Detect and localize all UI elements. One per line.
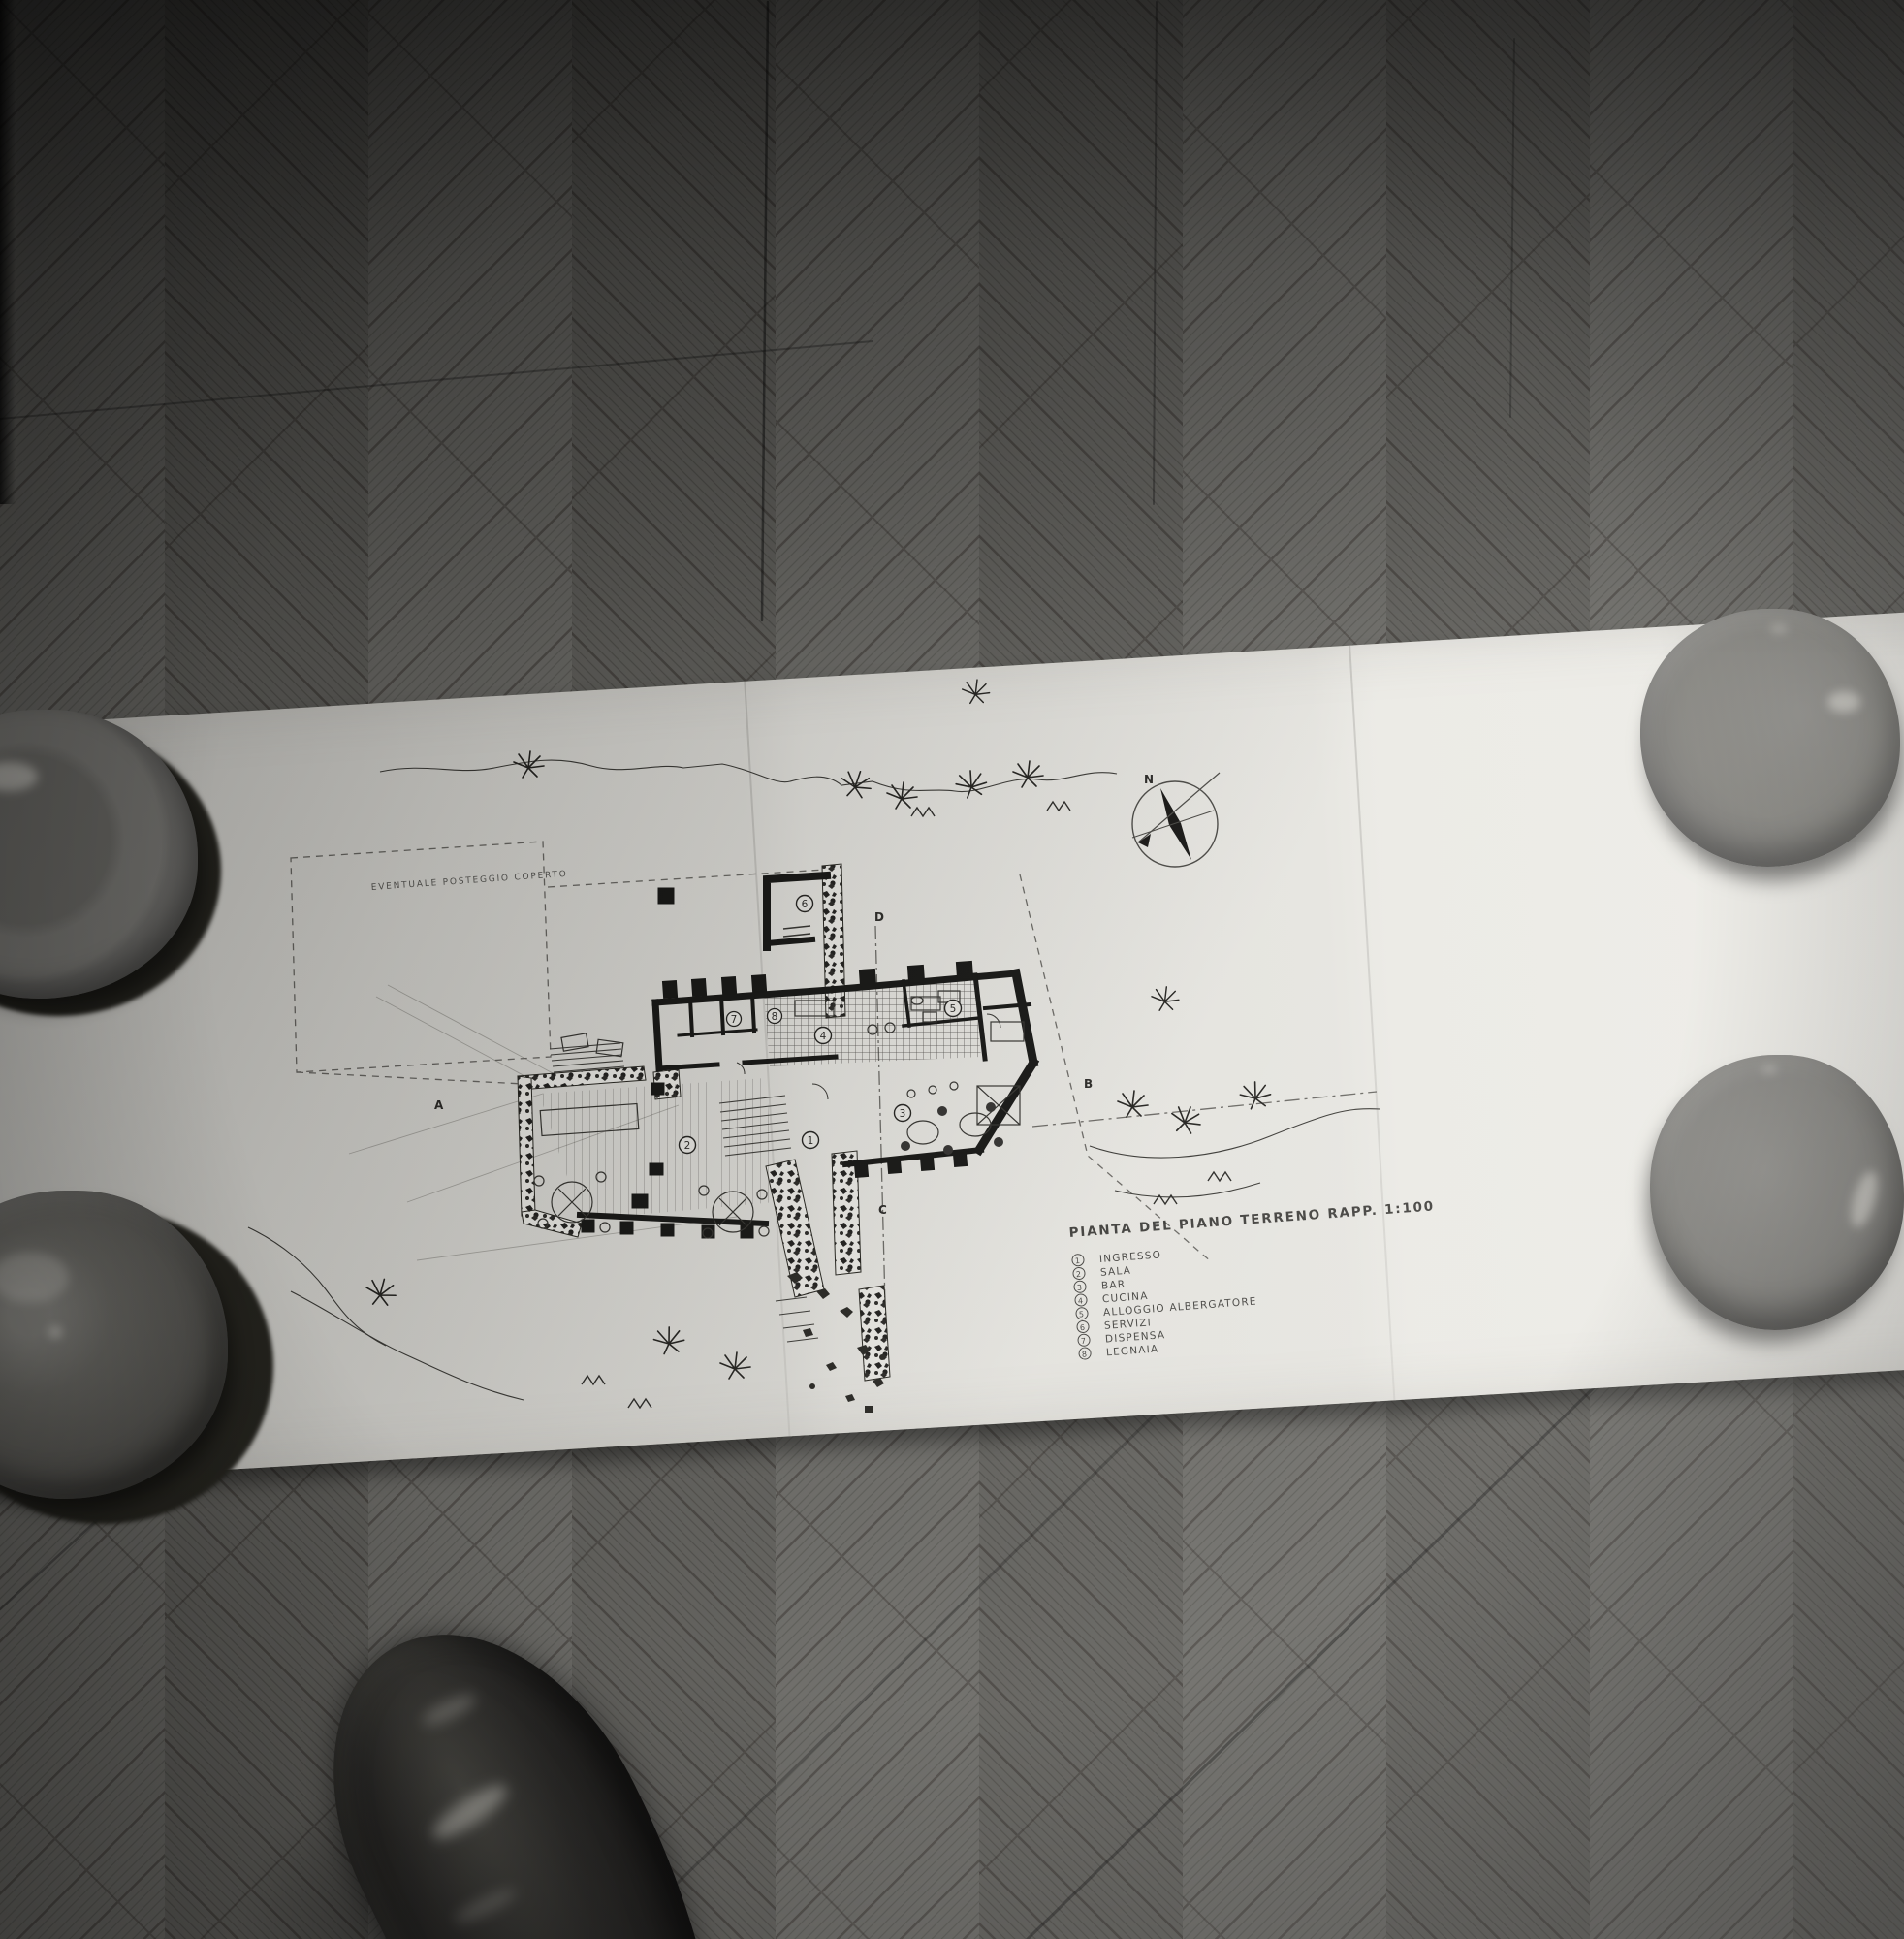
bowl-highlight: [1770, 624, 1788, 633]
bowl-highlight: [0, 762, 38, 791]
svg-text:6: 6: [1080, 1323, 1087, 1332]
room-number-2: 2: [684, 1140, 691, 1152]
section-marker-c: C: [878, 1203, 887, 1217]
shoe-highlight: [420, 1690, 480, 1731]
floor-plan-drawing: N: [0, 0, 1904, 1939]
room-number-7: 7: [731, 1014, 738, 1026]
bowl-highlight: [1846, 1168, 1883, 1230]
terrain-trees-top: [380, 680, 1117, 816]
bowl-highlight: [1761, 1065, 1777, 1073]
shoe-highlight: [452, 1884, 520, 1927]
shoe-highlight: [427, 1777, 513, 1847]
svg-text:5: 5: [1079, 1310, 1086, 1319]
room-number-3: 3: [900, 1108, 906, 1120]
svg-text:SERVIZI: SERVIZI: [1104, 1317, 1153, 1332]
svg-text:BAR: BAR: [1101, 1279, 1127, 1292]
section-marker-d: D: [874, 910, 884, 924]
svg-text:SALA: SALA: [1100, 1265, 1132, 1279]
svg-text:LEGNAIA: LEGNAIA: [1106, 1343, 1159, 1358]
svg-text:INGRESSO: INGRESSO: [1099, 1249, 1162, 1265]
svg-text:4: 4: [1078, 1296, 1085, 1305]
room-number-1: 1: [808, 1135, 814, 1147]
svg-text:CUCINA: CUCINA: [1102, 1290, 1149, 1305]
site-note-text: EVENTUALE POSTEGGIO COPERTO: [371, 870, 568, 893]
plan-legend: 1 INGRESSO 2 SALA 3 BAR 4 CUCINA 5 ALLOG…: [1072, 1241, 1261, 1360]
svg-text:7: 7: [1081, 1337, 1088, 1346]
compass-rose: N: [1132, 773, 1220, 867]
floor-hatches: [539, 975, 981, 1220]
bowl-highlight: [0, 1253, 69, 1303]
svg-text:1: 1: [1075, 1256, 1082, 1265]
bowl-paperweight-right-middle: [1650, 1055, 1904, 1330]
legend-item: 3 BAR: [1074, 1278, 1127, 1294]
section-marker-a: A: [434, 1098, 444, 1112]
terrain-trees-bottom-left: [248, 1227, 750, 1408]
room-number-8: 8: [772, 1011, 778, 1023]
svg-text:2: 2: [1076, 1270, 1083, 1279]
compass-n-label: N: [1144, 773, 1154, 786]
room-number-4: 4: [820, 1031, 827, 1042]
section-marker-b: B: [1084, 1077, 1093, 1091]
legend-item: 1 INGRESSO: [1072, 1248, 1162, 1267]
svg-text:8: 8: [1082, 1350, 1089, 1358]
svg-text:3: 3: [1077, 1284, 1084, 1292]
plan-title: PIANTA DEL PIANO TERRENO RAPP. 1:100: [1068, 1198, 1435, 1241]
bowl-highlight: [1827, 691, 1860, 713]
room-number-5: 5: [950, 1003, 957, 1015]
room-number-6: 6: [802, 899, 809, 910]
terrain-trees-right: [1090, 987, 1380, 1204]
photo-floorplan-on-parquet: N: [0, 0, 1904, 1939]
bowl-paperweight-top-right: [1640, 609, 1900, 867]
bowl-highlight: [48, 1326, 62, 1338]
legend-item: 8 LEGNAIA: [1079, 1342, 1159, 1360]
